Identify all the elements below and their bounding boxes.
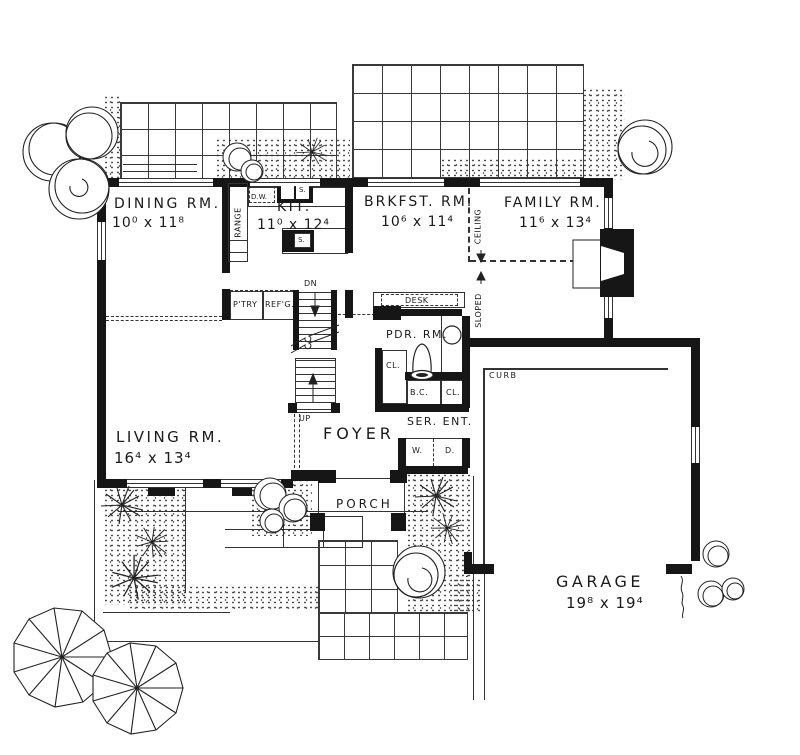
bed-edge-line (185, 483, 186, 593)
window (97, 222, 106, 260)
wall (604, 228, 613, 298)
dishwasher-label: D.W. (251, 193, 267, 201)
washer-label: W. (412, 446, 423, 455)
foyer-label: FOYER (323, 424, 395, 443)
powder-room-label: PDR. RM. (386, 328, 448, 341)
wall (345, 290, 353, 318)
stair-rail (331, 290, 337, 350)
umbrella-tree-icon (93, 643, 183, 734)
window (127, 479, 203, 488)
planting-bed (103, 95, 122, 180)
porch-pillar (310, 513, 325, 531)
desk-label: DESK (405, 296, 429, 305)
family-room-label: FAMILY RM. (504, 195, 602, 211)
hall-dashed-line (338, 314, 375, 315)
window (691, 427, 700, 463)
porch-pillar (391, 513, 406, 531)
range-label: RANGE (234, 207, 243, 237)
sink-bowl (281, 183, 294, 199)
wall-powder-bottom (405, 372, 469, 380)
porch-label: PORCH (336, 497, 393, 511)
wall-garage-stub (464, 564, 494, 574)
umbrella-tree-icon (14, 608, 112, 707)
planting-bed (440, 158, 582, 178)
wall-closet-bottom (375, 404, 469, 412)
stair-up-label: UP (299, 414, 311, 423)
ceiling-note-lower: SLOPED (468, 286, 488, 334)
hall-closet (382, 350, 407, 404)
range-counter: RANGE (228, 183, 248, 262)
wall-garage-stub (666, 564, 692, 574)
wall-closet-left (375, 348, 382, 412)
front-door-line (336, 478, 390, 479)
foyer-jamb (331, 403, 340, 413)
wall-pantry (222, 289, 230, 320)
window (368, 178, 444, 187)
front-walk-lower (318, 612, 468, 660)
window (604, 296, 613, 318)
sink-label: S. (299, 186, 306, 194)
curb-label: CURB (489, 371, 518, 380)
porch-edge-line (404, 483, 405, 513)
tree-icon (618, 120, 672, 174)
washer-dryer-divider (433, 439, 434, 466)
window (221, 479, 281, 488)
broom-closet-label: B.C. (410, 388, 428, 397)
front-walk-upper (318, 540, 398, 614)
stair-treads-down (299, 292, 331, 350)
yard-boundary-line (94, 480, 95, 642)
wall (203, 479, 221, 488)
deck-step-line (123, 171, 197, 172)
wall-service-front (400, 466, 468, 474)
window (604, 198, 613, 228)
wall (97, 479, 127, 488)
foyer-living-divider (294, 414, 295, 468)
kitchen-label: KIT. (277, 199, 312, 215)
wall (352, 178, 368, 187)
pantry-label: P'TRY (233, 300, 257, 309)
breakfast-room-dims: 10⁶ x 11⁴ (381, 214, 454, 230)
bush-icon (698, 541, 744, 607)
bed-edge-line (103, 612, 230, 613)
wiggle-dash (466, 576, 467, 577)
window (119, 178, 213, 187)
porch-edge-line (318, 483, 319, 513)
dining-living-divider (106, 316, 222, 317)
driveway-curb-line (483, 368, 485, 565)
wall-powder-top (373, 309, 462, 316)
wall-hall-right (462, 438, 470, 468)
planting-bed (582, 88, 625, 180)
family-room-dims: 11⁶ x 13⁴ (519, 215, 592, 231)
planting-bed (215, 138, 350, 180)
window (480, 178, 580, 187)
porch-pillar (318, 470, 336, 483)
stair-down-label: DN (304, 279, 317, 288)
hall-closet-label: CL. (386, 361, 400, 370)
planting-bed (452, 578, 480, 612)
dryer-label: D. (445, 446, 455, 455)
yard-boundary-line (94, 641, 320, 642)
wall (291, 470, 319, 481)
stair-rail (293, 290, 299, 350)
sloped-ceiling-line (470, 260, 576, 262)
stair-treads-up (296, 360, 335, 412)
service-closet-label: CL. (446, 388, 460, 397)
garage-dims: 19⁸ x 19⁴ (566, 594, 644, 612)
dining-living-divider (106, 320, 222, 321)
kitchen-dims: 11⁰ x 12⁴ (257, 217, 330, 233)
deck-step-line (123, 164, 197, 165)
terrace-step-line (118, 511, 428, 512)
dining-room-label: DINING RM. (114, 196, 221, 212)
driveway-curb-line (483, 368, 668, 370)
service-walk-line (473, 476, 474, 700)
living-room-dims: 16⁴ x 13⁴ (114, 449, 192, 467)
service-entry-label: SER. ENT. (407, 415, 473, 428)
foyer-jamb (288, 403, 297, 413)
wall (444, 178, 480, 187)
refrigerator-label: REF'G. (265, 300, 294, 309)
ceiling-note-upper: CEILING (468, 202, 488, 250)
planting-bed (128, 585, 318, 611)
dining-room-dims: 10⁰ x 11⁸ (112, 215, 185, 231)
ceiling-note-arrow-icon (477, 250, 485, 284)
powder-partition-line (441, 316, 442, 372)
planting-wiggle-line (681, 576, 684, 618)
wall-garage-top (466, 338, 700, 347)
breakfast-room-label: BRKFST. RM. (364, 194, 473, 210)
living-room-label: LIVING RM. (116, 428, 224, 446)
floor-plan-canvas: D.W. S. RANGE S. P'TRY REF'G. DN UP DESK… (0, 0, 800, 755)
wall-kitchen-breakfast (345, 178, 353, 253)
island-sink-label: S. (298, 236, 305, 244)
garage-label: GARAGE (556, 572, 644, 591)
